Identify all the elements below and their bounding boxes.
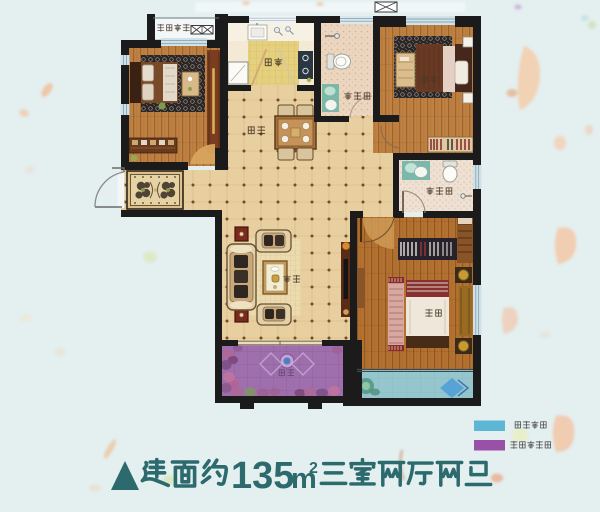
svg-text:2: 2: [309, 460, 318, 477]
svg-text:135: 135: [231, 455, 294, 497]
